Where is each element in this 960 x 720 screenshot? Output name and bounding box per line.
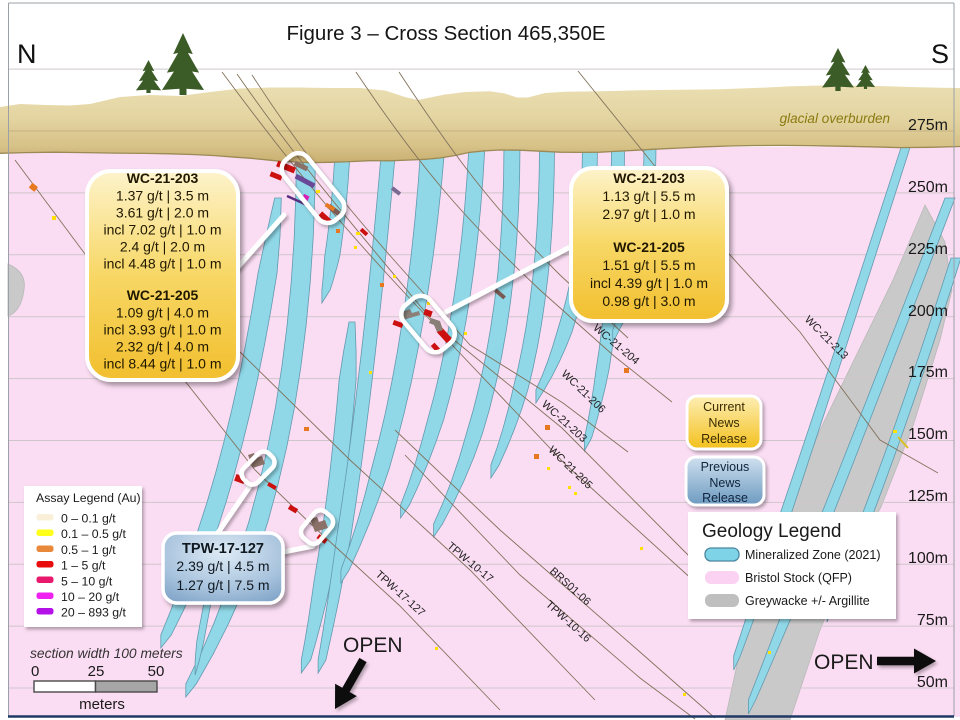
svg-text:150m: 150m	[908, 426, 948, 443]
svg-text:News: News	[709, 476, 740, 490]
svg-text:100m: 100m	[908, 550, 948, 567]
svg-text:Current: Current	[703, 400, 745, 414]
svg-text:0 – 0.1 g/t: 0 – 0.1 g/t	[61, 512, 116, 526]
svg-text:WC-21-203: WC-21-203	[127, 170, 199, 186]
svg-text:1.51 g/t | 5.5 m: 1.51 g/t | 5.5 m	[602, 257, 695, 273]
svg-text:250m: 250m	[908, 179, 948, 196]
svg-text:OPEN: OPEN	[343, 634, 403, 657]
svg-text:2.97 g/t | 1.0 m: 2.97 g/t | 1.0 m	[602, 206, 695, 222]
svg-text:20 – 893 g/t: 20 – 893 g/t	[61, 606, 127, 620]
svg-text:Geology Legend: Geology Legend	[702, 521, 841, 542]
svg-text:WC-21-203: WC-21-203	[613, 170, 685, 186]
svg-text:Mineralized Zone (2021): Mineralized Zone (2021)	[745, 548, 881, 562]
svg-text:WC-21-205: WC-21-205	[127, 287, 199, 303]
svg-text:25: 25	[88, 663, 105, 680]
svg-text:Previous: Previous	[701, 460, 750, 474]
svg-text:50: 50	[148, 663, 165, 680]
svg-text:meters: meters	[79, 696, 125, 713]
svg-text:Greywacke +/- Argillite: Greywacke +/- Argillite	[745, 594, 870, 608]
svg-text:125m: 125m	[908, 488, 948, 505]
svg-text:Release: Release	[702, 491, 748, 505]
svg-text:News: News	[708, 416, 739, 430]
svg-text:WC-21-205: WC-21-205	[613, 239, 685, 255]
svg-text:175m: 175m	[908, 364, 948, 381]
svg-text:2.32 g/t | 4.0 m: 2.32 g/t | 4.0 m	[116, 339, 209, 355]
svg-text:N: N	[17, 39, 37, 69]
svg-text:200m: 200m	[908, 303, 948, 320]
svg-text:TPW-17-127: TPW-17-127	[182, 541, 264, 557]
svg-text:275m: 275m	[908, 117, 948, 134]
svg-text:incl 8.44 g/t | 1.0 m: incl 8.44 g/t | 1.0 m	[103, 356, 221, 372]
svg-text:Figure 3 – Cross Section 465,3: Figure 3 – Cross Section 465,350E	[286, 22, 605, 45]
svg-text:incl 4.39 g/t | 1.0 m: incl 4.39 g/t | 1.0 m	[590, 275, 708, 291]
svg-text:S: S	[931, 39, 949, 69]
svg-text:2.39 g/t | 4.5 m: 2.39 g/t | 4.5 m	[176, 558, 269, 574]
svg-text:1.37 g/t | 3.5 m: 1.37 g/t | 3.5 m	[116, 188, 209, 204]
svg-text:3.61 g/t | 2.0 m: 3.61 g/t | 2.0 m	[116, 205, 209, 221]
svg-text:0.98 g/t | 3.0 m: 0.98 g/t | 3.0 m	[602, 293, 695, 309]
svg-text:Bristol Stock (QFP): Bristol Stock (QFP)	[745, 571, 852, 585]
svg-text:1.09 g/t | 4.0 m: 1.09 g/t | 4.0 m	[116, 305, 209, 321]
svg-text:5 – 10 g/t: 5 – 10 g/t	[61, 575, 113, 589]
svg-text:Assay Legend (Au): Assay Legend (Au)	[36, 491, 141, 505]
svg-text:0.5 – 1 g/t: 0.5 – 1 g/t	[61, 543, 116, 557]
svg-text:10 – 20 g/t: 10 – 20 g/t	[61, 590, 120, 604]
svg-text:glacial overburden: glacial overburden	[780, 111, 890, 126]
svg-text:incl 3.93 g/t | 1.0 m: incl 3.93 g/t | 1.0 m	[103, 322, 221, 338]
svg-text:Release: Release	[701, 432, 747, 446]
svg-text:50m: 50m	[917, 674, 948, 691]
svg-text:75m: 75m	[917, 612, 948, 629]
svg-text:1.27 g/t | 7.5 m: 1.27 g/t | 7.5 m	[176, 577, 269, 593]
svg-text:1.13 g/t | 5.5 m: 1.13 g/t | 5.5 m	[602, 188, 695, 204]
svg-text:2.4 g/t | 2.0 m: 2.4 g/t | 2.0 m	[120, 239, 205, 255]
svg-text:1 – 5 g/t: 1 – 5 g/t	[61, 559, 106, 573]
svg-text:incl 4.48 g/t | 1.0 m: incl 4.48 g/t | 1.0 m	[103, 256, 221, 272]
svg-text:225m: 225m	[908, 241, 948, 258]
svg-text:0.1 – 0.5 g/t: 0.1 – 0.5 g/t	[61, 527, 127, 541]
svg-text:0: 0	[31, 663, 39, 680]
svg-text:section width 100 meters: section width 100 meters	[30, 646, 183, 661]
svg-text:OPEN: OPEN	[814, 651, 874, 674]
svg-text:incl 7.02 g/t | 1.0 m: incl 7.02 g/t | 1.0 m	[103, 222, 221, 238]
